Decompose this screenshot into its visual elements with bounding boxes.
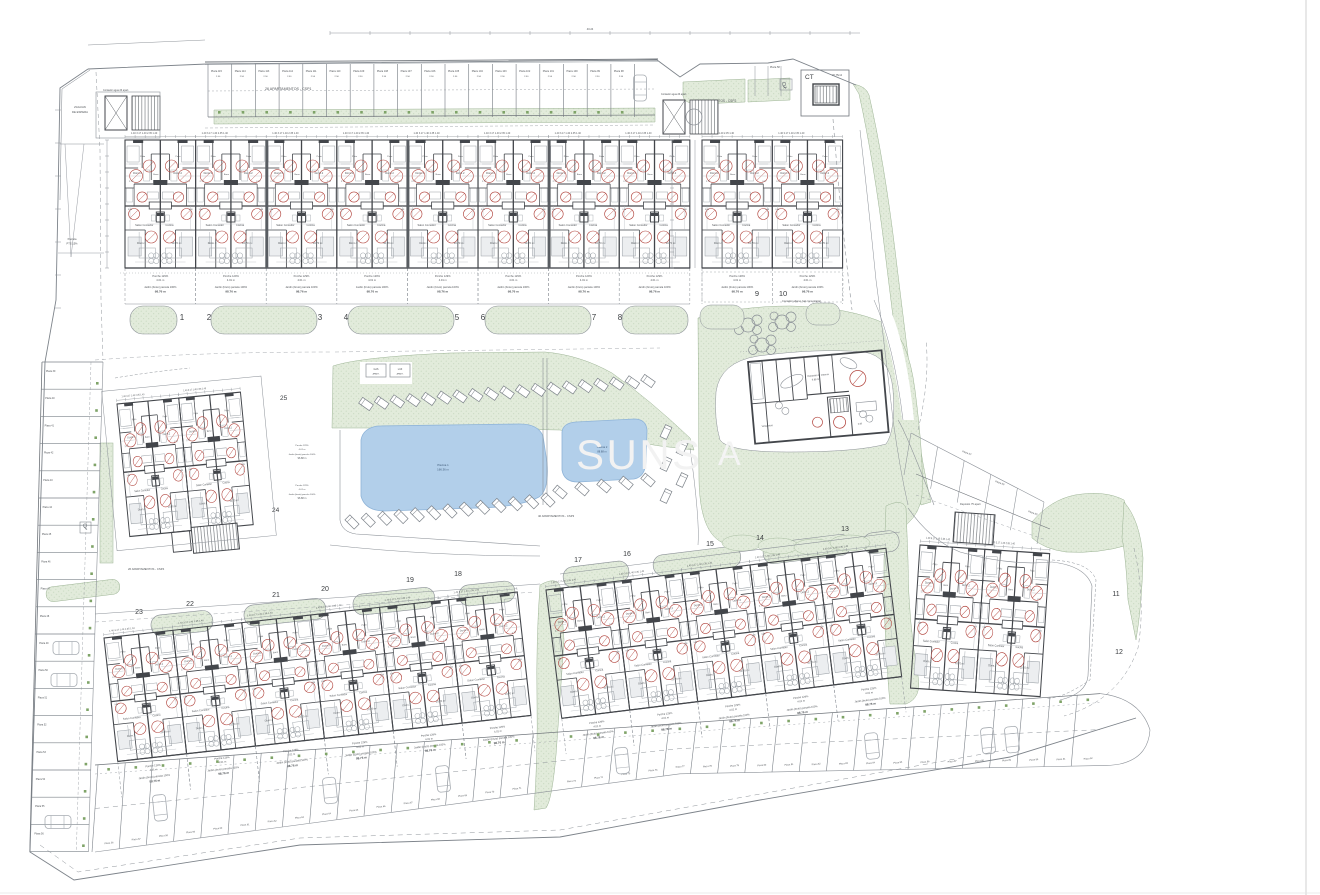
svg-text:Plaza 39: Plaza 39 bbox=[46, 370, 56, 373]
svg-text:10: 10 bbox=[779, 289, 787, 298]
svg-text:40.24: 40.24 bbox=[587, 27, 594, 31]
svg-text:Jardin (bruto) parcela 100%: Jardin (bruto) parcela 100% bbox=[289, 453, 316, 456]
svg-text:Contador agua 26 apart.: Contador agua 26 apart. bbox=[103, 89, 129, 92]
svg-text:Parcela: Parcela bbox=[68, 237, 77, 241]
svg-text:14: 14 bbox=[756, 535, 764, 542]
svg-text:3: 3 bbox=[318, 313, 323, 322]
svg-text:4.01 m: 4.01 m bbox=[299, 489, 306, 491]
svg-text:Jardin (bruto) parcela 100%: Jardin (bruto) parcela 100% bbox=[289, 493, 316, 496]
svg-text:22: 22 bbox=[186, 601, 194, 608]
svg-text:18: 18 bbox=[454, 571, 462, 578]
svg-text:Contador agua 26 apart.: Contador agua 26 apart. bbox=[661, 93, 687, 96]
svg-text:Plaza 104: Plaza 104 bbox=[472, 70, 484, 73]
svg-text:Plaza 101: Plaza 101 bbox=[543, 70, 555, 73]
svg-text:Deposito 75 apart: Deposito 75 apart bbox=[960, 502, 981, 506]
svg-text:24: 24 bbox=[272, 507, 280, 514]
svg-text:CT: CT bbox=[805, 74, 814, 81]
svg-text:Plaza 41: Plaza 41 bbox=[45, 424, 55, 427]
svg-text:96.88 m: 96.88 m bbox=[298, 457, 307, 460]
svg-text:Plaza 106: Plaza 106 bbox=[424, 70, 436, 73]
svg-text:ZAGUAN: ZAGUAN bbox=[74, 105, 86, 109]
svg-text:Plaza 52: Plaza 52 bbox=[37, 724, 47, 727]
svg-text:Plaza 98: Plaza 98 bbox=[614, 70, 624, 73]
svg-text:13: 13 bbox=[841, 526, 849, 533]
svg-text:Porche 129%: Porche 129% bbox=[295, 444, 308, 447]
svg-text:2: 2 bbox=[207, 313, 212, 322]
svg-text:Plaza 114: Plaza 114 bbox=[235, 70, 247, 73]
svg-text:12: 12 bbox=[1115, 649, 1123, 656]
svg-text:Plaza 100: Plaza 100 bbox=[567, 70, 579, 73]
svg-text:6: 6 bbox=[481, 313, 486, 322]
svg-text:16: 16 bbox=[623, 551, 631, 558]
svg-text:Plaza 58: Plaza 58 bbox=[770, 66, 780, 69]
svg-text:19: 19 bbox=[406, 577, 414, 584]
svg-text:Plaza 45: Plaza 45 bbox=[42, 533, 52, 536]
svg-text:21: 21 bbox=[272, 592, 280, 599]
svg-text:17: 17 bbox=[574, 557, 582, 564]
svg-text:20: 20 bbox=[321, 586, 329, 593]
svg-text:Plaza 49: Plaza 49 bbox=[39, 642, 49, 645]
svg-text:Plaza 115: Plaza 115 bbox=[211, 70, 223, 73]
svg-text:LUZ: LUZ bbox=[398, 368, 403, 371]
svg-text:11: 11 bbox=[1112, 591, 1119, 598]
svg-text:Plaza 54: Plaza 54 bbox=[36, 778, 46, 781]
svg-text:GAS: GAS bbox=[373, 368, 378, 371]
svg-text:Plaza 40: Plaza 40 bbox=[45, 397, 55, 400]
svg-text:26 APARTAMENTOS - CSP4: 26 APARTAMENTOS - CSP4 bbox=[128, 567, 165, 571]
svg-text:25: 25 bbox=[280, 395, 288, 402]
svg-text:Plaza 42: Plaza 42 bbox=[44, 452, 54, 455]
svg-text:8: 8 bbox=[618, 313, 623, 322]
svg-text:Plaza 55: Plaza 55 bbox=[35, 805, 45, 808]
svg-text:1: 1 bbox=[180, 313, 185, 322]
svg-text:23: 23 bbox=[135, 609, 143, 616]
svg-text:Plaza 102: Plaza 102 bbox=[519, 70, 531, 73]
svg-text:40 APARTAMENTOS - CSP3: 40 APARTAMENTOS - CSP3 bbox=[538, 514, 575, 518]
svg-text:7: 7 bbox=[592, 313, 597, 322]
svg-text:Plaza 56: Plaza 56 bbox=[34, 832, 44, 835]
svg-text:APART.: APART. bbox=[397, 373, 404, 376]
svg-text:9: 9 bbox=[755, 289, 759, 298]
svg-text:APART.: APART. bbox=[373, 373, 380, 376]
svg-text:PTS 15%: PTS 15% bbox=[67, 242, 79, 246]
svg-text:Plaza 50: Plaza 50 bbox=[39, 669, 49, 672]
svg-text:Plaza 110: Plaza 110 bbox=[330, 70, 342, 73]
svg-text:DE ESPERA: DE ESPERA bbox=[72, 110, 88, 114]
svg-text:Plaza 44: Plaza 44 bbox=[43, 506, 53, 509]
svg-text:166.36 m: 166.36 m bbox=[437, 468, 449, 472]
svg-text:Plaza 51: Plaza 51 bbox=[38, 696, 48, 699]
svg-text:20.75m2: 20.75m2 bbox=[832, 73, 843, 77]
svg-text:SUNS: SUNS bbox=[576, 431, 703, 478]
svg-text:26 APARTAMENTOS - CSP1: 26 APARTAMENTOS - CSP1 bbox=[265, 87, 311, 91]
svg-text:Plaza 112: Plaza 112 bbox=[282, 70, 294, 73]
svg-text:4: 4 bbox=[344, 313, 349, 322]
svg-text:Plaza 99: Plaza 99 bbox=[590, 70, 600, 73]
svg-text:15: 15 bbox=[706, 541, 714, 548]
svg-text:Plaza 47: Plaza 47 bbox=[41, 588, 51, 591]
svg-text:Plaza 113: Plaza 113 bbox=[258, 70, 270, 73]
svg-text:Plaza 48: Plaza 48 bbox=[40, 615, 50, 618]
svg-text:Contador aljamo (sal comunitar: Contador aljamo (sal comunitaria) bbox=[782, 299, 821, 303]
svg-text:Plaza 111: Plaza 111 bbox=[306, 70, 317, 73]
svg-text:9.88 m: 9.88 m bbox=[812, 378, 820, 382]
svg-text:Plaza 107: Plaza 107 bbox=[401, 70, 413, 73]
svg-text:Plaza 109: Plaza 109 bbox=[353, 70, 365, 73]
svg-text:A: A bbox=[718, 435, 741, 473]
svg-text:5: 5 bbox=[455, 313, 460, 322]
svg-text:96.88 m: 96.88 m bbox=[298, 497, 307, 500]
svg-text:Piscina 1: Piscina 1 bbox=[437, 463, 449, 467]
svg-text:Plaza 105: Plaza 105 bbox=[448, 70, 460, 73]
svg-text:Plaza 53: Plaza 53 bbox=[37, 751, 47, 754]
svg-text:Porche 129%: Porche 129% bbox=[295, 484, 308, 487]
svg-text:Plaza 46: Plaza 46 bbox=[41, 560, 51, 563]
svg-text:Plaza 108: Plaza 108 bbox=[377, 70, 389, 73]
svg-text:Plaza 43: Plaza 43 bbox=[43, 479, 53, 482]
svg-text:Plaza 103: Plaza 103 bbox=[495, 70, 507, 73]
svg-text:4.01 m: 4.01 m bbox=[299, 449, 306, 451]
